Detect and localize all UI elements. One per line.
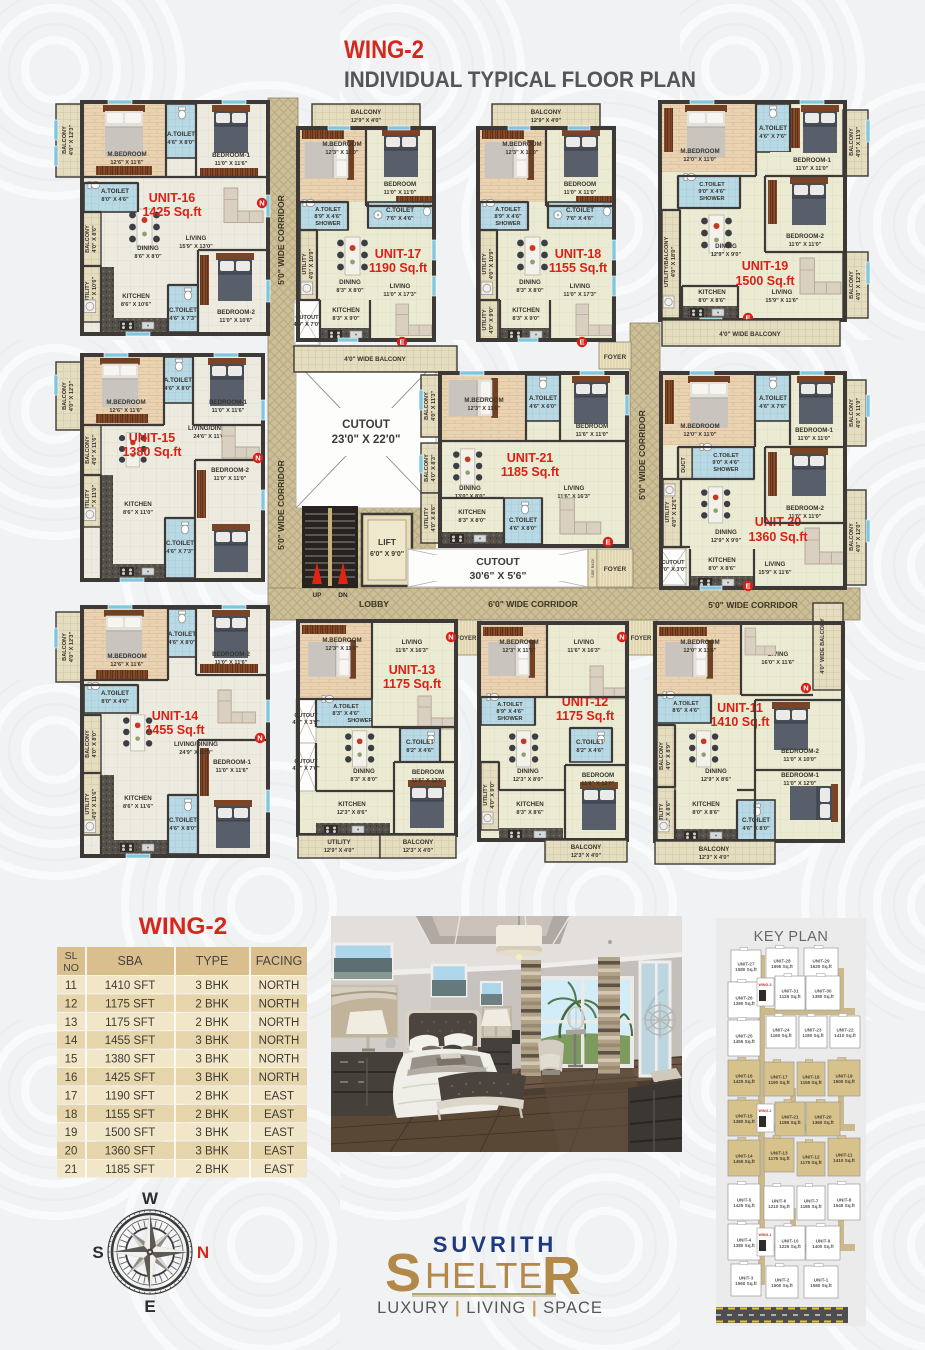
svg-text:BEDROOM: BEDROOM	[384, 181, 416, 188]
svg-text:1500 Sq.ft: 1500 Sq.ft	[735, 274, 795, 288]
svg-text:UNIT-24: UNIT-24	[772, 1028, 790, 1033]
svg-text:SUVRITH: SUVRITH	[433, 1232, 558, 1257]
svg-text:1155 Sq.ft: 1155 Sq.ft	[800, 1080, 822, 1085]
svg-text:LIVING: LIVING	[765, 561, 786, 568]
svg-text:FOYER: FOYER	[456, 636, 477, 642]
svg-text:12'6" X 11'6": 12'6" X 11'6"	[110, 160, 144, 166]
svg-text:FOYER: FOYER	[604, 566, 627, 573]
svg-text:1500 Sq.ft: 1500 Sq.ft	[771, 1283, 793, 1288]
svg-text:C.TOILET: C.TOILET	[576, 739, 604, 746]
svg-text:C.TOILET: C.TOILET	[713, 453, 739, 459]
svg-text:3 BHK: 3 BHK	[195, 1127, 229, 1139]
svg-text:12'3" X 11'0": 12'3" X 11'0"	[467, 406, 501, 412]
svg-text:1155 SFT: 1155 SFT	[105, 1109, 155, 1121]
svg-text:UNIT-11: UNIT-11	[836, 1153, 853, 1158]
svg-text:A.TOILET: A.TOILET	[168, 631, 196, 638]
svg-text:NORTH: NORTH	[259, 998, 300, 1010]
svg-text:1160 Sq.ft: 1160 Sq.ft	[770, 1033, 792, 1038]
svg-text:UTILITY/BALCONY: UTILITY/BALCONY	[664, 237, 670, 288]
svg-text:11'0" X 11'0": 11'0" X 11'0"	[214, 476, 247, 482]
svg-text:FACING: FACING	[256, 954, 303, 968]
svg-text:M.BEDROOM: M.BEDROOM	[502, 141, 541, 148]
svg-text:4'0" X 8'9": 4'0" X 8'9"	[666, 742, 672, 770]
svg-text:4'0" X 11'9": 4'0" X 11'9"	[856, 127, 862, 157]
svg-text:FOYER: FOYER	[631, 636, 652, 642]
svg-text:NORTH: NORTH	[259, 980, 300, 992]
svg-text:11'6" X 16'3": 11'6" X 16'3"	[567, 648, 601, 654]
svg-text:UTILITY: UTILITY	[482, 253, 488, 274]
svg-text:KITCHEN: KITCHEN	[338, 801, 366, 808]
svg-text:CUTOUT: CUTOUT	[476, 556, 520, 568]
svg-text:M.BEDROOM: M.BEDROOM	[107, 151, 146, 158]
svg-text:KITCHEN: KITCHEN	[332, 307, 360, 314]
svg-text:4'0" WIDE BALCONY: 4'0" WIDE BALCONY	[820, 618, 826, 674]
svg-text:N: N	[197, 1243, 209, 1262]
svg-text:4'0" X 8'6": 4'0" X 8'6"	[92, 225, 98, 253]
svg-text:11'6" X 12'0": 11'6" X 12'0"	[411, 778, 445, 784]
svg-text:1185 Sq.ft: 1185 Sq.ft	[800, 1204, 822, 1209]
svg-text:UNIT-3: UNIT-3	[739, 1276, 754, 1281]
svg-text:C.TOILET: C.TOILET	[699, 182, 725, 188]
svg-text:C.TOILET: C.TOILET	[406, 739, 434, 746]
svg-text:8'9" X 4'6": 8'9" X 4'6"	[494, 214, 522, 220]
svg-text:12'3" X 11'6": 12'3" X 11'6"	[502, 648, 536, 654]
svg-text:1455 Sq.ft: 1455 Sq.ft	[733, 1039, 755, 1044]
svg-text:W: W	[142, 1189, 159, 1208]
svg-text:12'3" X 8'0": 12'3" X 8'0"	[513, 777, 544, 783]
svg-text:2 BHK: 2 BHK	[195, 998, 229, 1010]
svg-text:NORTH: NORTH	[259, 1072, 300, 1084]
svg-text:UNIT-4: UNIT-4	[737, 1238, 752, 1243]
svg-text:11'0" X 11'6": 11'0" X 11'6"	[212, 408, 245, 414]
svg-text:12'0" X 11'0": 12'0" X 11'0"	[683, 432, 717, 438]
svg-text:4'0" X 12'0": 4'0" X 12'0"	[856, 521, 862, 552]
svg-text:1190 Sq.ft: 1190 Sq.ft	[369, 261, 428, 275]
svg-text:8'9" X 4'6": 8'9" X 4'6"	[314, 214, 342, 220]
svg-text:4'6" X 7'3": 4'6" X 7'3"	[169, 316, 197, 322]
svg-text:12: 12	[65, 998, 78, 1010]
svg-text:DINING: DINING	[519, 279, 541, 286]
svg-text:1190 SFT: 1190 SFT	[105, 1090, 155, 1102]
svg-text:UNIT-14: UNIT-14	[152, 709, 199, 723]
svg-text:UNIT-18: UNIT-18	[802, 1075, 820, 1080]
svg-text:DINING: DINING	[137, 245, 159, 252]
svg-text:11'0" X 17'3": 11'0" X 17'3"	[383, 292, 417, 298]
svg-text:C.TOILET: C.TOILET	[386, 207, 414, 214]
svg-text:TYPE: TYPE	[196, 954, 229, 968]
svg-text:WING-3: WING-3	[759, 983, 772, 987]
svg-text:8'2" X 4'6": 8'2" X 4'6"	[406, 748, 434, 754]
svg-text:KITCHEN: KITCHEN	[122, 293, 150, 300]
svg-text:UNIT-15: UNIT-15	[129, 431, 176, 445]
svg-text:BEDROOM: BEDROOM	[582, 772, 614, 779]
svg-text:8'3" X 8'0": 8'3" X 8'0"	[336, 288, 364, 294]
svg-text:30'6" X 5'6": 30'6" X 5'6"	[470, 570, 527, 582]
svg-text:UTILITY: UTILITY	[85, 793, 91, 814]
svg-text:A.TOILET: A.TOILET	[315, 207, 341, 213]
svg-text:1455 Sq.ft: 1455 Sq.ft	[145, 723, 205, 737]
svg-text:11'0" X 11'6": 11'0" X 11'6"	[215, 161, 248, 167]
svg-text:LIVING: LIVING	[574, 639, 595, 646]
svg-text:4'0" X 11'3": 4'0" X 11'3"	[431, 391, 437, 421]
svg-text:11'0" X 11'0": 11'0" X 11'0"	[796, 166, 829, 172]
svg-text:8'3" X 9'0": 8'3" X 9'0"	[332, 316, 360, 322]
svg-text:SHOWER: SHOWER	[497, 716, 522, 722]
svg-text:4'0" X 3'0": 4'0" X 3'0"	[659, 567, 687, 573]
svg-text:12'0" X 11'0": 12'0" X 11'0"	[683, 157, 717, 163]
svg-text:1695 Sq.ft: 1695 Sq.ft	[771, 964, 793, 969]
svg-text:11'0" X 12'0": 11'0" X 12'0"	[783, 781, 817, 787]
svg-text:UNIT-6: UNIT-6	[772, 1199, 787, 1204]
svg-text:SHOWER: SHOWER	[713, 467, 738, 473]
svg-text:C.TOILET: C.TOILET	[166, 540, 194, 547]
svg-text:BALCONY: BALCONY	[85, 225, 91, 253]
svg-text:SHOWER: SHOWER	[699, 196, 724, 202]
svg-text:8'2" X 4'6": 8'2" X 4'6"	[576, 748, 604, 754]
svg-text:SHOWER: SHOWER	[495, 221, 520, 227]
svg-text:4'6" X 6'0": 4'6" X 6'0"	[529, 404, 557, 410]
svg-text:20: 20	[65, 1146, 78, 1158]
svg-text:16'0" X 11'6": 16'0" X 11'6"	[761, 660, 795, 666]
svg-text:4'0" X 9'0": 4'0" X 9'0"	[490, 781, 496, 809]
svg-text:1175 Sq.ft: 1175 Sq.ft	[556, 709, 615, 723]
svg-text:INDIVIDUAL TYPICAL FLOOR PLAN: INDIVIDUAL TYPICAL FLOOR PLAN	[344, 67, 696, 92]
svg-text:4'0" X 11'6": 4'0" X 11'6"	[92, 435, 98, 465]
svg-text:8'0" X 8'6": 8'0" X 8'6"	[698, 298, 726, 304]
svg-text:8'0" X 4'6": 8'0" X 4'6"	[101, 699, 129, 705]
svg-text:1400 Sq.ft: 1400 Sq.ft	[812, 1244, 834, 1249]
svg-text:8'3" X 9'0": 8'3" X 9'0"	[512, 316, 540, 322]
svg-text:1410 SFT: 1410 SFT	[105, 980, 156, 992]
svg-text:21: 21	[65, 1164, 78, 1176]
svg-text:7'6" X 4'6": 7'6" X 4'6"	[386, 216, 414, 222]
svg-text:EAST: EAST	[264, 1164, 294, 1176]
svg-text:A.TOILET: A.TOILET	[167, 131, 195, 138]
svg-text:11'0" X 11'0": 11'0" X 11'0"	[384, 190, 417, 196]
svg-text:BALCONY: BALCONY	[531, 109, 562, 116]
svg-text:LIVING: LIVING	[186, 235, 207, 242]
svg-text:11'6" X 12'0": 11'6" X 12'0"	[581, 781, 615, 787]
svg-text:8'6" X 10'6": 8'6" X 10'6"	[121, 302, 152, 308]
svg-text:4'0" X 10'9": 4'0" X 10'9"	[309, 248, 315, 279]
svg-text:12'3" X 11'0": 12'3" X 11'0"	[505, 150, 539, 156]
svg-text:4'6" X 8'0": 4'6" X 8'0"	[742, 826, 770, 832]
svg-text:14: 14	[65, 1035, 78, 1047]
svg-text:11: 11	[65, 980, 77, 992]
svg-text:8'0" X 8'6": 8'0" X 8'6"	[708, 566, 736, 572]
svg-text:KITCHEN: KITCHEN	[698, 289, 726, 296]
svg-text:8'3" X 8'0": 8'3" X 8'0"	[516, 288, 544, 294]
svg-text:SBA: SBA	[117, 954, 143, 968]
svg-text:1175 SFT: 1175 SFT	[105, 1017, 155, 1029]
svg-text:UNIT-17: UNIT-17	[375, 247, 422, 261]
svg-text:LIVING: LIVING	[390, 283, 411, 290]
svg-text:BEDROOM-1: BEDROOM-1	[213, 759, 251, 766]
svg-text:4'0" X 12'6": 4'0" X 12'6"	[672, 496, 678, 527]
svg-text:A.TOILET: A.TOILET	[673, 701, 699, 707]
svg-text:3 BHK: 3 BHK	[195, 1035, 229, 1047]
svg-text:DINING: DINING	[715, 529, 737, 536]
svg-text:UTILITY: UTILITY	[85, 281, 91, 302]
svg-text:1500 SFT: 1500 SFT	[105, 1127, 156, 1139]
svg-text:12'3" X 8'6": 12'3" X 8'6"	[337, 810, 368, 816]
svg-text:M.BEDROOM: M.BEDROOM	[322, 141, 361, 148]
svg-text:A.TOILET: A.TOILET	[759, 125, 787, 132]
svg-text:11'0" X 11'0": 11'0" X 11'0"	[798, 436, 831, 442]
svg-text:UNIT-1: UNIT-1	[814, 1278, 829, 1283]
svg-text:UNIT-30: UNIT-30	[814, 989, 832, 994]
svg-text:M.BEDROOM: M.BEDROOM	[499, 639, 538, 646]
svg-text:12'3" X 4'0": 12'3" X 4'0"	[403, 848, 434, 854]
svg-text:4'0" X 12'3": 4'0" X 12'3"	[69, 380, 75, 411]
svg-text:BALCONY: BALCONY	[424, 392, 430, 420]
svg-text:UTILITY: UTILITY	[85, 489, 91, 510]
svg-text:M.BEDROOM: M.BEDROOM	[464, 397, 503, 404]
svg-text:3 BHK: 3 BHK	[195, 980, 229, 992]
svg-text:1580 Sq.ft: 1580 Sq.ft	[735, 967, 757, 972]
svg-text:R: R	[542, 1246, 581, 1306]
svg-text:BALCONY: BALCONY	[424, 454, 430, 482]
svg-text:15'9" X 11'6": 15'9" X 11'6"	[758, 570, 792, 576]
svg-text:5'0" WIDE CORRIDOR: 5'0" WIDE CORRIDOR	[276, 194, 286, 284]
svg-text:BALCONY: BALCONY	[849, 271, 855, 299]
svg-text:UNIT-22: UNIT-22	[836, 1028, 854, 1033]
svg-text:4'0" X 18'0": 4'0" X 18'0"	[671, 246, 677, 277]
svg-text:KITCHEN: KITCHEN	[458, 509, 486, 516]
svg-text:4'0" X 12'3": 4'0" X 12'3"	[856, 269, 862, 300]
svg-text:11'0" X 11'6": 11'0" X 11'6"	[216, 768, 249, 774]
svg-text:BEDROOM-2: BEDROOM-2	[786, 233, 824, 240]
svg-text:A.TOILET: A.TOILET	[333, 704, 359, 710]
svg-text:1185 Sq.ft: 1185 Sq.ft	[501, 465, 560, 479]
svg-text:EAST: EAST	[264, 1127, 294, 1139]
svg-text:18: 18	[65, 1109, 78, 1121]
svg-text:LIFT: LIFT	[378, 537, 397, 547]
svg-text:A.TOILET: A.TOILET	[529, 395, 557, 402]
svg-text:UTILITY: UTILITY	[483, 784, 489, 805]
svg-text:BEDROOM-1: BEDROOM-1	[781, 772, 819, 779]
svg-text:11'0" X 11'0": 11'0" X 11'0"	[564, 190, 597, 196]
svg-text:7'6" X 4'6": 7'6" X 4'6"	[566, 216, 594, 222]
svg-text:BEDROOM-2: BEDROOM-2	[786, 505, 824, 512]
svg-text:6'0" WIDE CORRIDOR: 6'0" WIDE CORRIDOR	[488, 599, 578, 609]
svg-text:UTILITY: UTILITY	[302, 253, 308, 274]
svg-text:12'6" X 11'6": 12'6" X 11'6"	[110, 662, 144, 668]
svg-text:DINING: DINING	[459, 485, 481, 492]
svg-text:UNIT-19: UNIT-19	[835, 1074, 853, 1079]
svg-text:BEDROOM: BEDROOM	[576, 423, 608, 430]
svg-text:1545 Sq.ft: 1545 Sq.ft	[833, 1203, 855, 1208]
svg-text:1185 Sq.ft: 1185 Sq.ft	[779, 1120, 801, 1125]
svg-text:A.TOILET: A.TOILET	[164, 377, 192, 384]
svg-text:SHOWER: SHOWER	[347, 718, 372, 724]
svg-text:BEDROOM-1: BEDROOM-1	[212, 152, 250, 159]
svg-text:2 BHK: 2 BHK	[195, 1090, 229, 1102]
svg-text:BEDROOM-1: BEDROOM-1	[793, 157, 831, 164]
svg-text:UNIT-13: UNIT-13	[770, 1151, 788, 1156]
svg-text:UNIT-19: UNIT-19	[742, 259, 789, 273]
svg-text:1180 Sq.ft: 1180 Sq.ft	[802, 1033, 824, 1038]
svg-text:3 BHK: 3 BHK	[195, 1072, 229, 1084]
svg-text:E: E	[144, 1297, 155, 1316]
svg-text:M.BEDROOM: M.BEDROOM	[680, 639, 719, 646]
svg-text:BALCONY: BALCONY	[849, 399, 855, 427]
svg-text:8'9" X 4'6": 8'9" X 4'6"	[496, 709, 524, 715]
svg-text:UNIT-21: UNIT-21	[507, 451, 554, 465]
svg-text:4'6" X 7'3": 4'6" X 7'3"	[166, 549, 194, 555]
svg-text:NORTH: NORTH	[259, 1017, 300, 1029]
svg-text:WING-1: WING-1	[759, 1233, 772, 1237]
svg-text:LIVING: LIVING	[772, 289, 793, 296]
svg-text:8'0" X 8'6": 8'0" X 8'6"	[692, 810, 720, 816]
svg-text:DINING: DINING	[353, 768, 375, 775]
svg-text:1455 SFT: 1455 SFT	[105, 1035, 156, 1047]
svg-text:NO: NO	[63, 962, 79, 974]
svg-text:4'6" X 8'0": 4'6" X 8'0"	[509, 526, 537, 532]
svg-text:12'9" X 9'0": 12'9" X 9'0"	[711, 252, 742, 258]
svg-text:12'9" X 4'0": 12'9" X 4'0"	[531, 118, 562, 124]
svg-text:NORTH: NORTH	[259, 1054, 300, 1066]
svg-text:4'0" WIDE BALCONY: 4'0" WIDE BALCONY	[719, 331, 781, 338]
svg-text:UNIT-25: UNIT-25	[735, 1034, 753, 1039]
svg-text:1175 Sq.ft: 1175 Sq.ft	[383, 677, 442, 691]
svg-text:19: 19	[65, 1127, 78, 1139]
svg-text:1425 Sq.ft: 1425 Sq.ft	[733, 1079, 755, 1084]
svg-text:SIDE RACK: SIDE RACK	[591, 558, 595, 578]
svg-text:UNIT-20: UNIT-20	[814, 1115, 832, 1120]
svg-text:UP: UP	[312, 592, 322, 599]
svg-text:LIVING: LIVING	[564, 485, 585, 492]
svg-text:CUTOUT: CUTOUT	[342, 419, 390, 431]
svg-text:LOBBY: LOBBY	[359, 599, 389, 609]
svg-text:1380 Sq.ft: 1380 Sq.ft	[812, 994, 834, 999]
svg-text:C.TOILET: C.TOILET	[742, 817, 770, 824]
svg-text:C.TOILET: C.TOILET	[566, 207, 594, 214]
svg-text:1155 Sq.ft: 1155 Sq.ft	[549, 261, 608, 275]
svg-text:4'0" X 11'6": 4'0" X 11'6"	[92, 789, 98, 819]
svg-text:BEDROOM: BEDROOM	[412, 769, 444, 776]
svg-text:DINING: DINING	[339, 279, 361, 286]
svg-text:16: 16	[65, 1072, 78, 1084]
svg-text:NORTH: NORTH	[259, 1035, 300, 1047]
svg-text:17: 17	[65, 1090, 78, 1102]
svg-text:1500 Sq.ft: 1500 Sq.ft	[833, 1079, 855, 1084]
svg-text:HELTE: HELTE	[425, 1255, 543, 1296]
svg-text:UNIT-8: UNIT-8	[837, 1198, 852, 1203]
svg-text:BALCONY: BALCONY	[351, 109, 382, 116]
svg-text:EAST: EAST	[264, 1090, 294, 1102]
svg-text:KEY PLAN: KEY PLAN	[754, 929, 829, 945]
svg-text:6'0" X 9'0": 6'0" X 9'0"	[370, 551, 404, 558]
svg-text:1175 Sq.ft: 1175 Sq.ft	[768, 1156, 790, 1161]
svg-text:1560 Sq.ft: 1560 Sq.ft	[735, 1281, 757, 1286]
svg-text:13: 13	[65, 1017, 78, 1029]
svg-text:LUXURY | LIVING | SPACE: LUXURY | LIVING | SPACE	[377, 1299, 603, 1317]
svg-text:UNIT-17: UNIT-17	[770, 1075, 788, 1080]
svg-text:8'6" X 11'6": 8'6" X 11'6"	[123, 804, 153, 810]
svg-text:4'0" X 8'3": 4'0" X 8'3"	[431, 454, 437, 482]
svg-text:1360 Sq.ft: 1360 Sq.ft	[812, 1120, 834, 1125]
svg-text:BALCONY: BALCONY	[62, 633, 68, 661]
svg-text:4'0" X 12'3": 4'0" X 12'3"	[69, 631, 75, 662]
svg-text:11'0" X 11'0": 11'0" X 11'0"	[789, 242, 822, 248]
svg-text:4'6" X 8'0": 4'6" X 8'0"	[167, 140, 195, 146]
svg-text:C.TOILET: C.TOILET	[509, 517, 537, 524]
svg-text:WING-2: WING-2	[344, 36, 424, 64]
svg-text:4'0" X 10'9": 4'0" X 10'9"	[489, 248, 495, 279]
svg-text:S: S	[92, 1243, 103, 1262]
svg-text:23'0" X 22'0": 23'0" X 22'0"	[332, 434, 401, 446]
svg-text:BEDROOM-2: BEDROOM-2	[212, 651, 250, 658]
svg-text:EAST: EAST	[264, 1146, 294, 1158]
svg-text:DUCT: DUCT	[681, 457, 687, 473]
svg-text:8'3" X 8'0": 8'3" X 8'0"	[458, 518, 486, 524]
svg-text:UNIT-16: UNIT-16	[735, 1074, 753, 1079]
svg-text:11'0" X 11'6": 11'0" X 11'6"	[215, 660, 248, 666]
svg-text:1360 SFT: 1360 SFT	[105, 1146, 156, 1158]
svg-text:KITCHEN: KITCHEN	[124, 501, 152, 508]
svg-text:DINING: DINING	[715, 243, 737, 250]
svg-text:1410 Sq.ft: 1410 Sq.ft	[834, 1033, 856, 1038]
svg-text:LIVING: LIVING	[402, 639, 423, 646]
svg-text:15: 15	[65, 1054, 78, 1066]
svg-text:A.TOILET: A.TOILET	[495, 207, 521, 213]
svg-text:BALCONY: BALCONY	[62, 126, 68, 154]
svg-text:UNIT-18: UNIT-18	[555, 247, 602, 261]
svg-text:UNIT-27: UNIT-27	[737, 962, 755, 967]
svg-text:KITCHEN: KITCHEN	[512, 307, 540, 314]
svg-text:UNIT-14: UNIT-14	[735, 1154, 753, 1159]
svg-text:UTILITY: UTILITY	[665, 501, 671, 522]
svg-text:8'3" X 8'6": 8'3" X 8'6"	[516, 810, 544, 816]
svg-text:12'9" X 8'6": 12'9" X 8'6"	[701, 777, 732, 783]
svg-text:A.TOILET: A.TOILET	[497, 702, 523, 708]
svg-text:1425 Sq.ft: 1425 Sq.ft	[733, 1203, 755, 1208]
svg-text:UNIT-12: UNIT-12	[802, 1155, 820, 1160]
svg-text:4'6" X 8'0": 4'6" X 8'0"	[168, 640, 196, 646]
svg-text:M.BEDROOM: M.BEDROOM	[680, 148, 719, 155]
svg-text:4'6" X 8'0": 4'6" X 8'0"	[164, 386, 192, 392]
svg-text:BEDROOM-1: BEDROOM-1	[209, 399, 247, 406]
svg-text:1210 Sq.ft: 1210 Sq.ft	[768, 1204, 790, 1209]
svg-text:1380 Sq.ft: 1380 Sq.ft	[733, 1001, 755, 1006]
svg-text:8'0" X 4'6": 8'0" X 4'6"	[101, 197, 129, 203]
svg-text:2 BHK: 2 BHK	[195, 1164, 229, 1176]
svg-text:4'6" X 7'6": 4'6" X 7'6"	[759, 404, 787, 410]
svg-text:UTILITY: UTILITY	[424, 507, 430, 528]
svg-text:11'0" X 10'0": 11'0" X 10'0"	[783, 757, 817, 763]
svg-text:1225 Sq.ft: 1225 Sq.ft	[779, 1244, 801, 1249]
svg-text:BALCONY: BALCONY	[849, 523, 855, 551]
svg-text:UNIT-13: UNIT-13	[389, 663, 436, 677]
svg-text:A.TOILET: A.TOILET	[101, 690, 129, 697]
svg-text:2 BHK: 2 BHK	[195, 1109, 229, 1121]
svg-text:5'0" WIDE CORRIDOR: 5'0" WIDE CORRIDOR	[637, 409, 647, 499]
svg-text:5'0" WIDE CORRIDOR: 5'0" WIDE CORRIDOR	[708, 600, 798, 610]
svg-text:UNIT-5: UNIT-5	[737, 1198, 752, 1203]
svg-text:UNIT-31: UNIT-31	[781, 989, 799, 994]
svg-text:1190 Sq.ft: 1190 Sq.ft	[768, 1080, 790, 1085]
svg-text:1175 Sq.ft: 1175 Sq.ft	[800, 1160, 822, 1165]
svg-text:1380 SFT: 1380 SFT	[105, 1054, 156, 1066]
svg-text:8'6" X 11'0": 8'6" X 11'0"	[123, 510, 153, 516]
svg-text:BALCONY: BALCONY	[62, 382, 68, 410]
svg-text:11'6" X 11'0": 11'6" X 11'0"	[576, 432, 609, 438]
svg-text:9'0" X 4'6": 9'0" X 4'6"	[712, 460, 740, 466]
svg-text:KITCHEN: KITCHEN	[124, 795, 152, 802]
svg-text:BEDROOM: BEDROOM	[564, 181, 596, 188]
svg-text:12'3" X 4'0": 12'3" X 4'0"	[571, 853, 602, 859]
